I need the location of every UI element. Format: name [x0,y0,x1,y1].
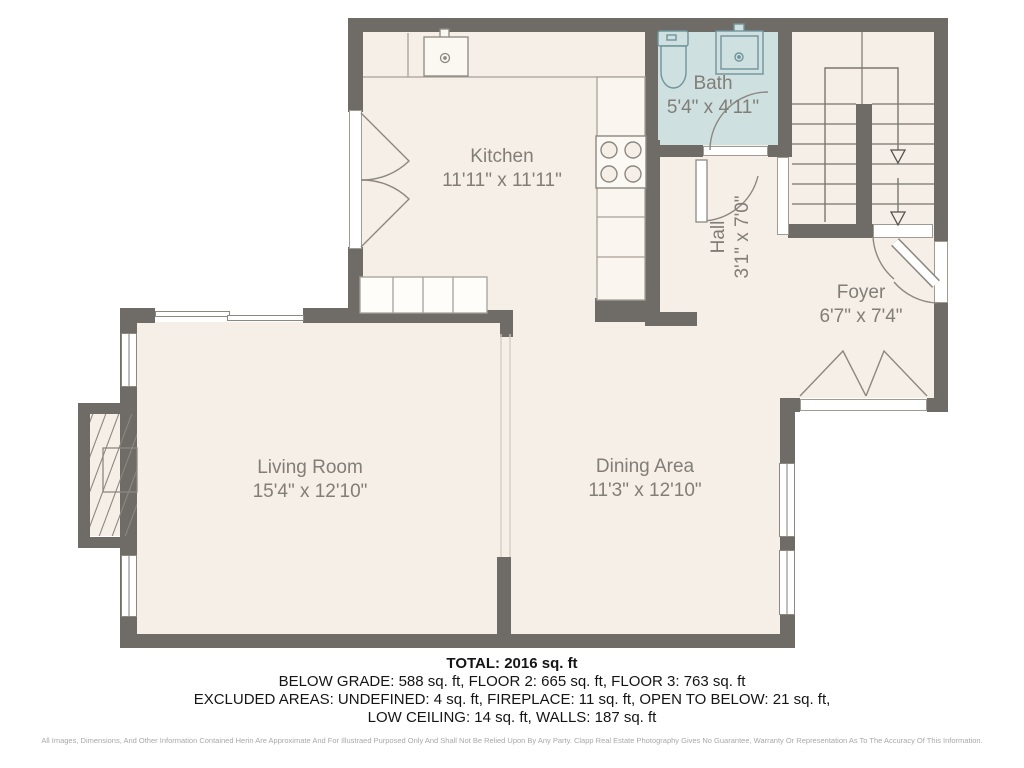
living-left-window-1 [121,333,137,387]
wall-right-lower [934,300,948,412]
living-left-window-2 [121,555,137,617]
wall-right-upper [934,18,948,241]
room-name: Living Room [253,456,368,480]
wall-living-top-left [120,308,155,323]
wall-fireplace-bottom [78,537,137,548]
wall-kitchen-left-upper [348,18,363,112]
floor-areas: BELOW GRADE: 588 sq. ft, FLOOR 2: 665 sq… [0,673,1024,691]
stairs-door-threshold [873,224,933,238]
room-label-kitchen: Kitchen 11'11" x 11'11" [442,145,562,193]
wall-kitchen-right [645,140,660,326]
room-name: Bath [667,72,759,96]
wall-foyer-bottom-right [927,398,948,412]
living-top-window-b [227,315,304,321]
room-name: Kitchen [442,145,562,169]
room-label-hall: Hall 3'1" x 7'0" [707,195,755,278]
excluded-areas-2: LOW CEILING: 14 sq. ft, WALLS: 187 sq. f… [0,709,1024,727]
room-label-foyer: Foyer 6'7" x 7'4" [819,281,902,329]
living-top-window-a [155,311,230,317]
hall-stairs-opening [777,157,789,235]
wall-bath-left [645,18,658,157]
wall-divider-top-stub [500,310,513,337]
wall-hall-bottom [645,312,697,326]
dining-right-window-2 [779,550,795,615]
total-area: TOTAL: 2016 sq. ft [0,655,1024,673]
room-name: Dining Area [588,455,701,479]
floor-plan-page: Kitchen 11'11" x 11'11" Bath 5'4" x 4'11… [0,0,1024,768]
dining-right-window-1 [779,463,795,537]
room-label-bath: Bath 5'4" x 4'11" [667,72,759,120]
wall-kitchen-bottom [348,310,513,323]
room-dims: 3'1" x 7'0" [731,195,755,278]
entry-door-leaf [934,241,948,303]
area-summary: TOTAL: 2016 sq. ft BELOW GRADE: 588 sq. … [0,655,1024,745]
room-label-dining-area: Dining Area 11'3" x 12'10" [588,455,701,503]
wall-bottom [120,634,795,648]
bath-door-threshold [703,146,768,156]
wall-stairs-bottom [788,224,873,238]
wall-kitchen-bottom-east [595,298,647,322]
wall-fireplace-left [78,403,90,548]
room-name: Foyer [819,281,902,305]
room-dims: 5'4" x 4'11" [667,96,759,120]
kitchen-balcony-door-opening [349,110,362,249]
room-name: Hall [707,195,731,278]
room-dims: 11'3" x 12'10" [588,479,701,503]
excluded-areas: EXCLUDED AREAS: UNDEFINED: 4 sq. ft, FIR… [0,691,1024,709]
room-label-living-room: Living Room 15'4" x 12'10" [253,456,368,504]
wall-stairs-center [856,104,872,226]
wall-divider-bottom-stub [497,557,511,634]
room-dims: 6'7" x 7'4" [819,305,902,329]
disclaimer: All Images, Dimensions, And Other Inform… [0,736,1024,745]
foyer-double-door-threshold [800,399,927,411]
wall-bath-bottom-left [645,145,703,157]
room-dims: 11'11" x 11'11" [442,169,562,193]
room-dims: 15'4" x 12'10" [253,480,368,504]
wall-bath-right [778,18,792,157]
